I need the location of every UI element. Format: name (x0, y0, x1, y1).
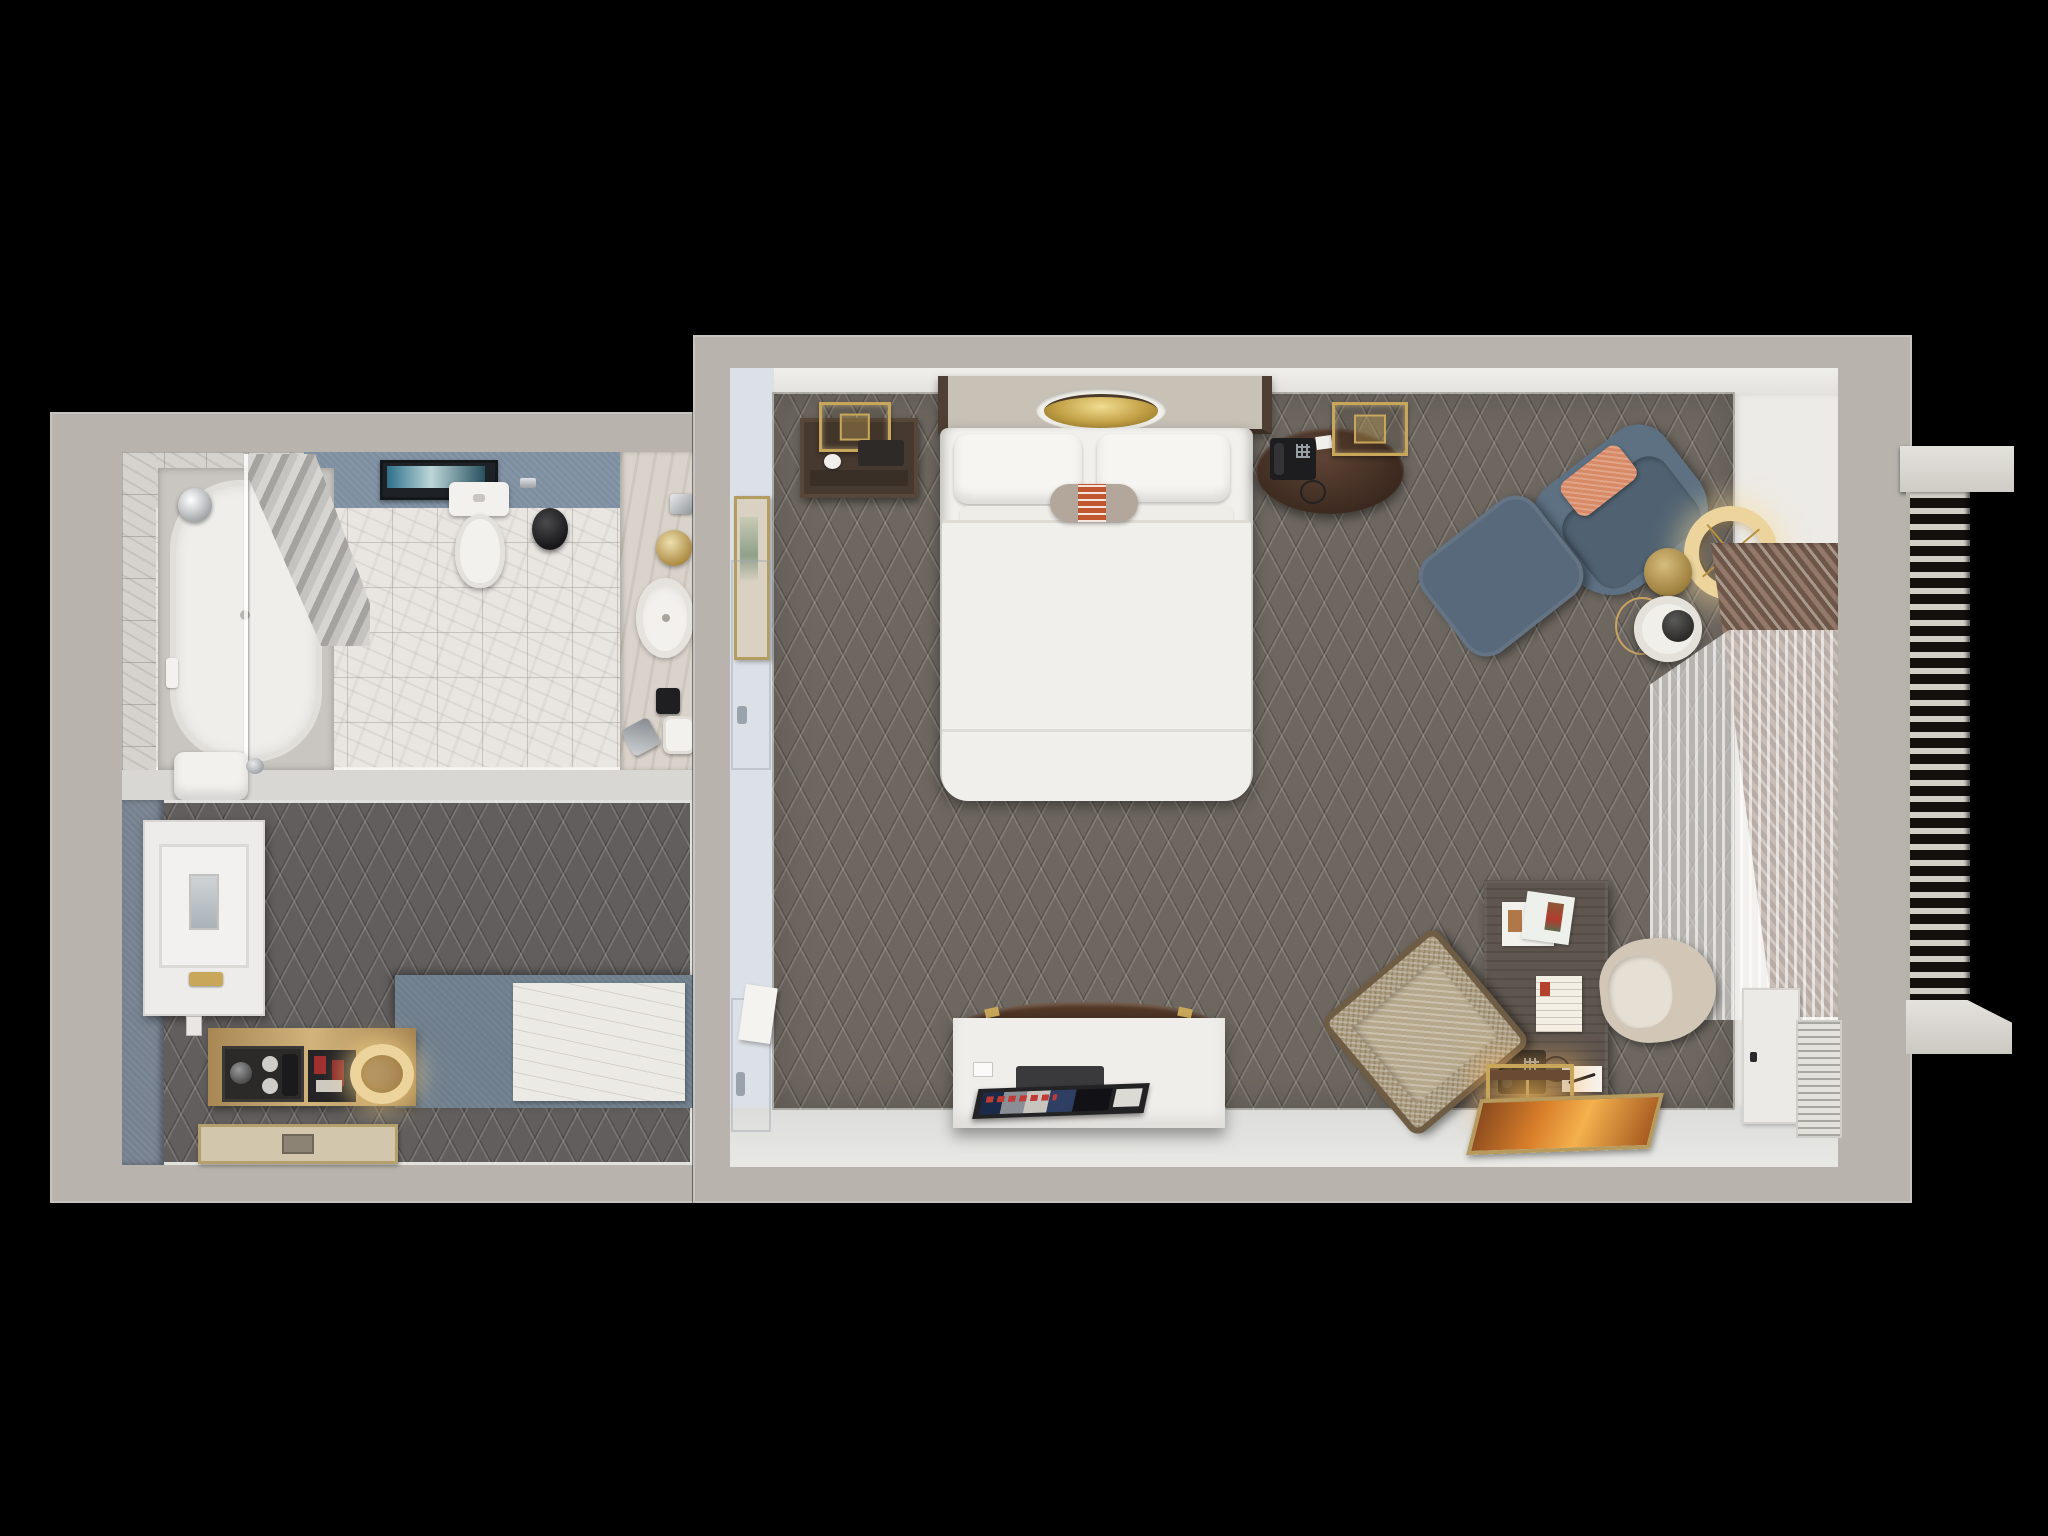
coffee-cup (824, 454, 841, 469)
bottom-wall-face (730, 1108, 1838, 1167)
floor-mat (198, 1124, 398, 1164)
minibar-cabinet (208, 1028, 416, 1106)
table-cup (1662, 610, 1694, 642)
shower-head (178, 488, 212, 522)
counter-sheet (513, 983, 685, 1101)
mat-emblem (282, 1134, 314, 1154)
wall-outlet (186, 1016, 202, 1036)
gold-decor-ball (656, 530, 692, 566)
closet-ring-lamp (350, 1044, 414, 1104)
toilet-bowl (455, 514, 505, 588)
letter-card (1536, 976, 1582, 1032)
duvet (942, 520, 1251, 801)
magazine-2-image (1544, 902, 1564, 932)
floorplan-stage (0, 0, 2048, 1536)
vent-cabinet (1796, 1020, 1842, 1138)
vanity-faucet (670, 494, 694, 514)
bed (940, 428, 1253, 800)
bathroom-door (731, 560, 771, 770)
entry-closet (122, 800, 693, 1165)
toilet-tank (449, 482, 509, 516)
glass-shower-screen (244, 454, 248, 768)
nightstand-drawer (810, 470, 908, 486)
cabinet-handle (189, 972, 223, 986)
ptac-keyhole (1750, 1052, 1757, 1062)
console-switch (973, 1062, 993, 1077)
bedroom-block (693, 335, 1912, 1203)
bottle-red-1 (314, 1056, 326, 1074)
gold-dome-pendant (1044, 394, 1158, 428)
bathroom-door-handle (737, 706, 747, 724)
toilet-paper-holder (520, 478, 536, 488)
tv-screen (972, 1083, 1150, 1119)
leaning-floor-art (1466, 1093, 1664, 1155)
telephone-handset (1274, 443, 1284, 475)
window-sill-top (1900, 446, 2014, 492)
soap-dish (166, 658, 178, 688)
luggage-counter (395, 975, 693, 1108)
bedroom (730, 368, 1838, 1167)
telephone-keypad (1296, 444, 1310, 458)
entry-door-handle (736, 1072, 745, 1096)
waste-bin (532, 508, 568, 550)
telephone (1270, 438, 1316, 480)
cabinet-picture (189, 874, 219, 930)
bathroom (122, 452, 693, 770)
tv-screen-panel (1113, 1088, 1143, 1107)
bath-left-wall-tile (122, 452, 156, 770)
minibar-bottles (308, 1050, 356, 1102)
sink-drain (662, 614, 670, 622)
duvet-seam (942, 729, 1251, 732)
towel-roll (663, 716, 695, 754)
nightstand-tray (858, 440, 904, 466)
radiator-grille (1906, 492, 1970, 1002)
desk-chair (1595, 932, 1721, 1048)
coffee-cup-2 (262, 1078, 278, 1094)
coffee-press (282, 1054, 298, 1096)
safe (222, 1046, 304, 1102)
ptac-cabinet (1742, 988, 1800, 1124)
table-lamp (1332, 402, 1408, 456)
letter-stamp (1540, 982, 1550, 996)
white-side-table (1634, 596, 1702, 662)
magazine-1-image (1508, 910, 1522, 932)
toiletry-kit (656, 688, 680, 714)
tv-console (953, 1018, 1225, 1128)
brass-side-table (1644, 548, 1692, 596)
window-sill-bottom (1906, 1000, 2012, 1054)
ironing-board-cabinet (143, 820, 265, 1016)
safe-dial (230, 1062, 252, 1084)
luggage-rack-top (1490, 1070, 1570, 1080)
snack-box (316, 1080, 342, 1092)
telephone-cord (1300, 480, 1326, 504)
bolster-band (1078, 484, 1106, 522)
bathroom-entry-block (50, 412, 730, 1203)
vanity-sink (636, 578, 694, 658)
coffee-cup-1 (262, 1056, 278, 1072)
tub-faucet (246, 758, 264, 774)
magazine-2 (1521, 891, 1575, 945)
top-wall-face (730, 368, 1838, 394)
flush-button (473, 494, 485, 502)
info-card (1315, 435, 1333, 450)
towel-stack (174, 752, 248, 800)
